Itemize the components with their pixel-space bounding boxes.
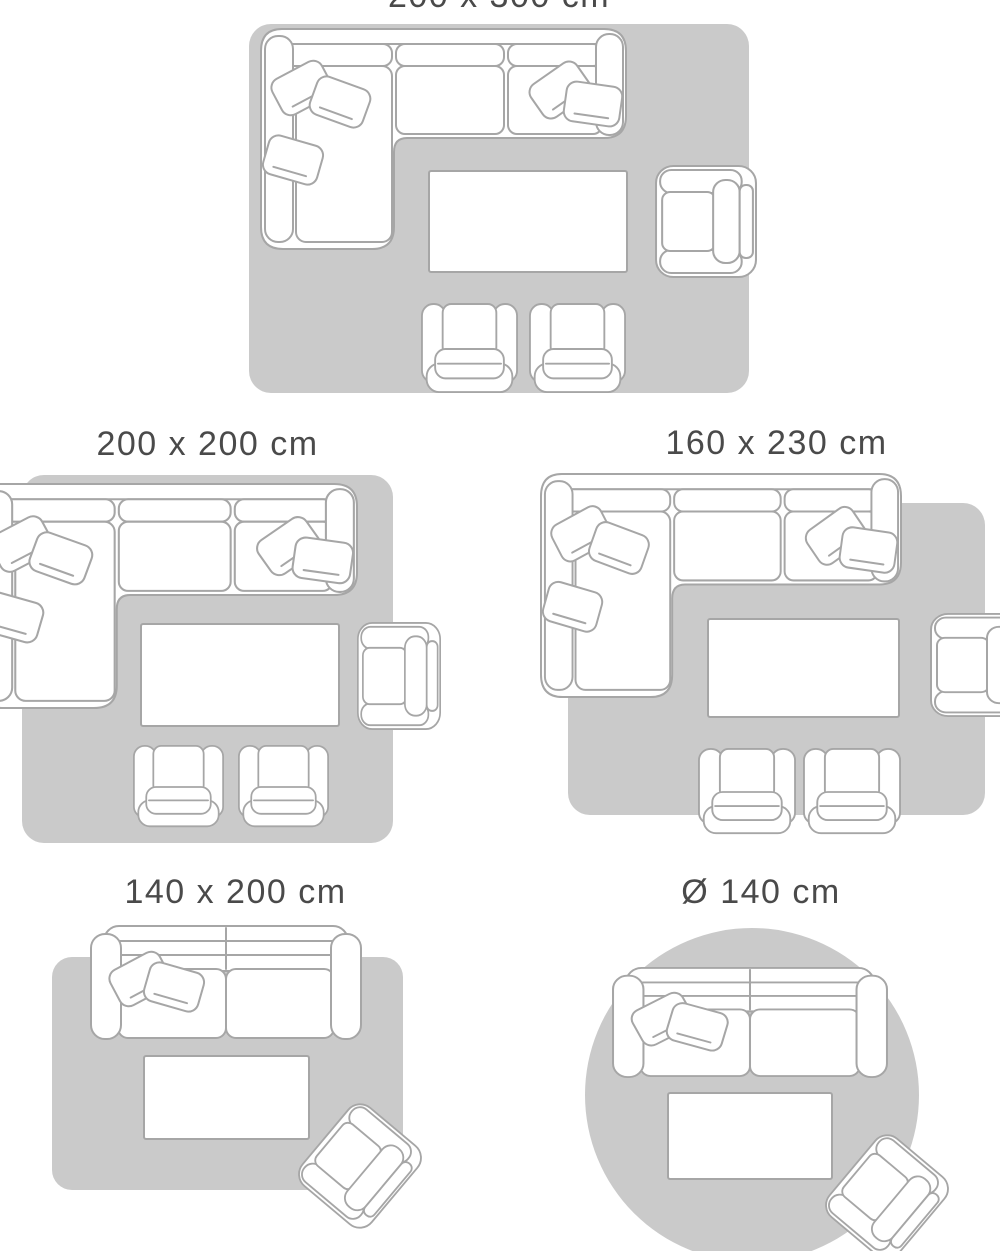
armchair xyxy=(655,165,757,278)
accent-chair-left xyxy=(698,748,796,836)
accent-chair-left xyxy=(421,303,518,395)
accent-chair-right xyxy=(529,303,626,395)
armchair xyxy=(930,613,1000,717)
size-label-140x200: 140 x 200 cm xyxy=(60,872,411,912)
size-label-circle-140: Ø 140 cm xyxy=(594,872,928,912)
accent-chair-right xyxy=(803,748,901,836)
coffee-table xyxy=(428,170,628,273)
accent-chair-right xyxy=(238,745,329,829)
loveseat-sofa xyxy=(90,925,362,1040)
size-label-200x200: 200 x 200 cm xyxy=(22,424,393,464)
size-label-160x230: 160 x 230 cm xyxy=(568,423,985,463)
coffee-table xyxy=(667,1092,833,1180)
rug-size-guide: 200 x 300 cm 200 x 200 cm 160 x 230 cm 1… xyxy=(0,0,1000,1251)
coffee-table xyxy=(707,618,900,718)
loveseat-sofa xyxy=(612,967,888,1078)
accent-chair-left xyxy=(133,745,224,829)
size-label-200x300: 200 x 300 cm xyxy=(249,0,749,16)
coffee-table xyxy=(140,623,340,727)
armchair xyxy=(357,622,441,730)
coffee-table xyxy=(143,1055,310,1140)
